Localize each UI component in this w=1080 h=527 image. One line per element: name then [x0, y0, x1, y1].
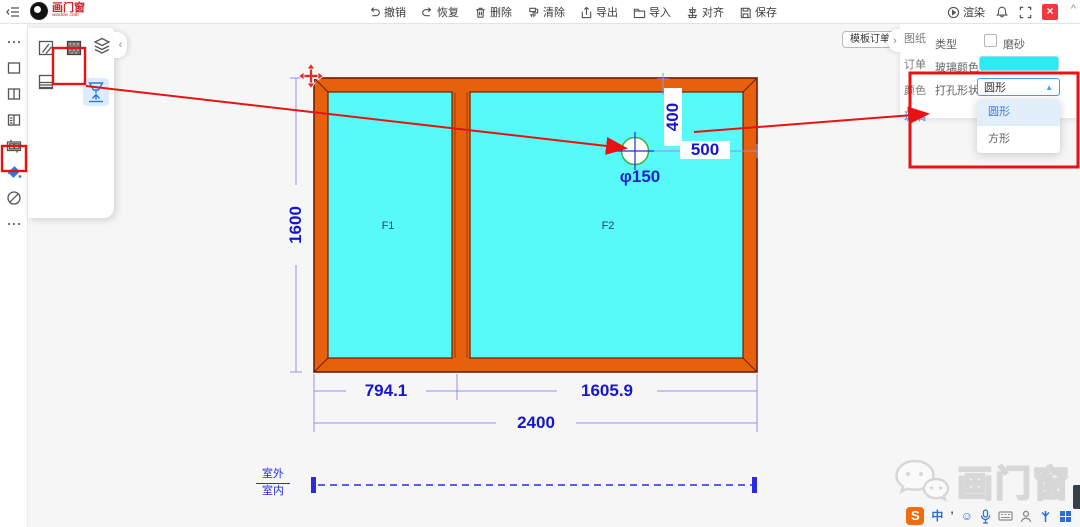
render-label: 渲染 — [963, 4, 985, 20]
import-button[interactable]: 导入 — [633, 4, 671, 20]
user-icon[interactable] — [1020, 510, 1032, 523]
toolbar: 撤销 恢复 删除 清除 导出 导入 对齐 保存 — [368, 0, 792, 24]
glass-tools-flyout — [28, 28, 114, 218]
hole-shape-value: 圆形 — [984, 79, 1006, 95]
dim-left-width: 794.1 — [346, 382, 426, 400]
hole-shape-menu: 圆形 方形 — [977, 99, 1060, 153]
save-button[interactable]: 保存 — [739, 4, 777, 20]
menu-option-circle[interactable]: 圆形 — [977, 99, 1060, 126]
align-label: 对齐 — [702, 4, 724, 20]
layered-glass-icon[interactable] — [90, 34, 114, 58]
more-tools-top-icon[interactable] — [2, 30, 26, 54]
glass-color-label: 玻璃颜色 — [935, 59, 979, 75]
frosted-label: 磨砂 — [1003, 36, 1025, 52]
more-tools-bottom-icon[interactable] — [2, 212, 26, 236]
tab-color[interactable]: 颜色 — [902, 82, 928, 98]
redo-label: 恢复 — [437, 4, 459, 20]
tab-drawing[interactable]: 图纸 — [902, 30, 928, 46]
collapse-sidebar-icon[interactable] — [6, 5, 20, 19]
save-label: 保存 — [755, 4, 777, 20]
export-button[interactable]: 导出 — [580, 4, 618, 20]
sliding-window-tool-icon[interactable] — [2, 134, 26, 158]
dim-hole-top: 400 — [664, 88, 682, 146]
glass-color-swatch[interactable] — [979, 56, 1059, 71]
hidden-tray-bar[interactable] — [1073, 485, 1080, 509]
app-logo: 画门窗 window craft — [30, 2, 85, 20]
ime-emoji-icon[interactable]: ☺ — [961, 507, 973, 525]
wechat-bubbles-icon — [893, 457, 951, 505]
undo-button[interactable]: 撤销 — [368, 4, 406, 20]
ime-lang-icon[interactable]: 中 — [931, 507, 943, 525]
pane-2-label: F2 — [588, 220, 628, 232]
logo-subtitle: window craft — [52, 13, 79, 18]
logo-cat-icon — [30, 2, 48, 20]
dim-total-width: 2400 — [496, 414, 576, 432]
microphone-icon[interactable] — [980, 509, 991, 524]
redo-button[interactable]: 恢复 — [421, 4, 459, 20]
frame-sash-tool-icon[interactable] — [2, 108, 26, 132]
drill-hole-tool-icon[interactable] — [83, 78, 109, 106]
dim-right-width: 1605.9 — [557, 382, 657, 400]
topbar-right-group: 渲染 × — [947, 0, 1058, 24]
disable-tool-icon[interactable] — [2, 186, 26, 210]
sogou-ime-icon[interactable]: S — [906, 507, 924, 525]
ime-taskbar: S 中 ’ ☺ — [906, 507, 1072, 525]
plain-glass-icon[interactable] — [34, 36, 58, 60]
pane-1-label: F1 — [368, 220, 408, 232]
inside-label: 室内 — [256, 484, 290, 499]
scroll-up-caret[interactable]: ^ — [1071, 3, 1076, 15]
type-label: 类型 — [935, 36, 957, 52]
tab-glass[interactable]: 玻璃 — [902, 108, 928, 124]
frame-two-pane-tool-icon[interactable] — [2, 82, 26, 106]
hole-shape-select[interactable]: 圆形 ▲ — [977, 78, 1060, 96]
grid-menu-icon[interactable] — [1059, 510, 1072, 523]
fullscreen-icon[interactable] — [1019, 6, 1032, 19]
toolbox-icon[interactable] — [1039, 510, 1052, 523]
ime-punct-icon[interactable]: ’ — [950, 507, 953, 525]
dropdown-caret-icon: ▲ — [1045, 83, 1053, 92]
panel-collapse-handle[interactable]: › — [888, 29, 902, 52]
close-button[interactable]: × — [1042, 4, 1058, 20]
export-label: 导出 — [596, 4, 618, 20]
clear-label: 清除 — [543, 4, 565, 20]
hole-diameter-label: φ150 — [610, 167, 670, 187]
delete-label: 删除 — [490, 4, 512, 20]
frosted-glass-icon[interactable] — [62, 36, 86, 60]
hole-shape-label: 打孔形状 — [935, 82, 979, 98]
frosted-checkbox[interactable] — [984, 34, 997, 47]
delete-button[interactable]: 删除 — [474, 4, 512, 20]
top-bar: 画门窗 window craft 撤销 恢复 删除 清除 导出 导入 — [0, 0, 1080, 24]
frame-single-tool-icon[interactable] — [2, 56, 26, 80]
notification-bell-icon[interactable] — [995, 5, 1009, 19]
dim-height: 1600 — [287, 185, 305, 265]
orientation-labels: 室外 室内 — [256, 467, 290, 499]
panel-tabs: 图纸 订单 颜色 玻璃 — [902, 30, 928, 134]
logo-title: 画门窗 — [52, 3, 85, 13]
dim-hole-right: 500 — [680, 141, 730, 159]
render-button[interactable]: 渲染 — [947, 4, 985, 20]
menu-option-square[interactable]: 方形 — [977, 126, 1060, 153]
left-tool-strip — [0, 24, 28, 527]
paint-bucket-tool-icon[interactable] — [2, 160, 26, 184]
watermark: 画门窗 — [893, 455, 1071, 507]
align-button[interactable]: 对齐 — [686, 4, 724, 20]
outside-label: 室外 — [256, 467, 290, 484]
keyboard-icon[interactable] — [998, 510, 1013, 522]
watermark-text: 画门窗 — [957, 455, 1071, 507]
undo-label: 撤销 — [384, 4, 406, 20]
laminated-glass-icon[interactable] — [34, 70, 58, 94]
tab-order[interactable]: 订单 — [902, 56, 928, 72]
import-label: 导入 — [649, 4, 671, 20]
clear-button[interactable]: 清除 — [527, 4, 565, 20]
